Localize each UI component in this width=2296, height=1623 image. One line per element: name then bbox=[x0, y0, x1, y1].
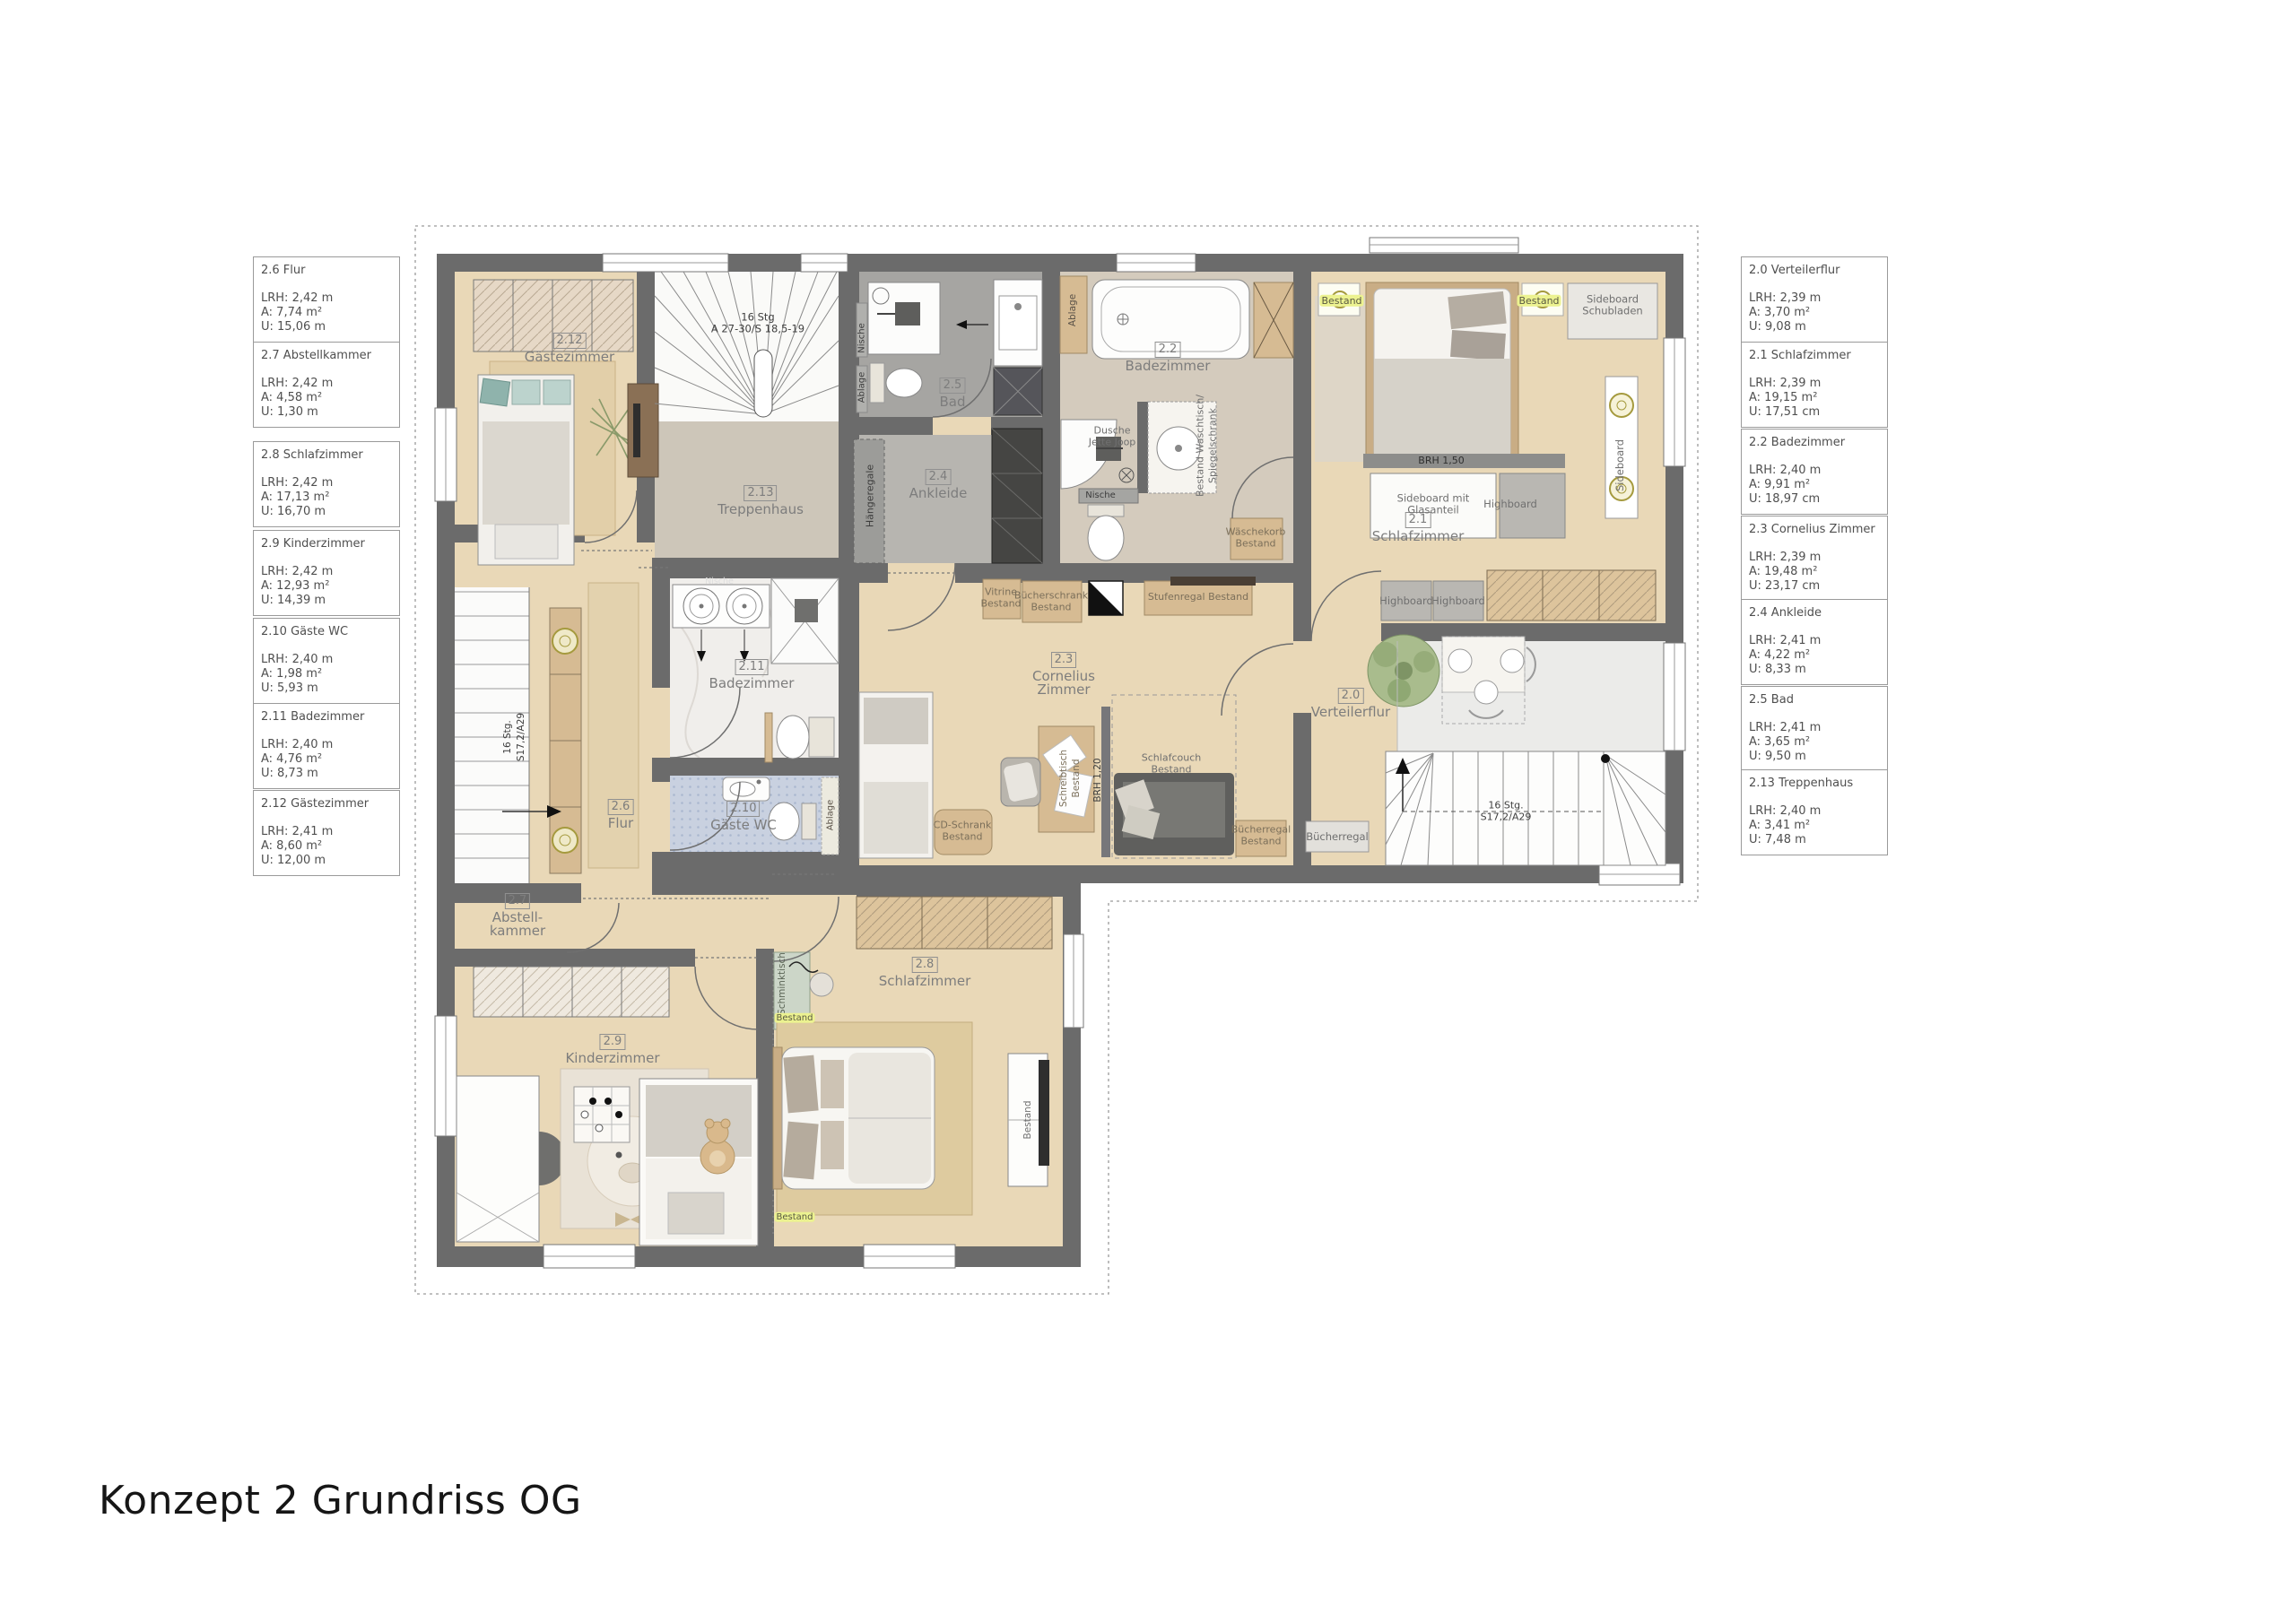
legend-lrh: LRH: 2,39 m bbox=[1749, 377, 1880, 391]
parapet-height-label: BRH 1,50 bbox=[1418, 456, 1464, 467]
window bbox=[1664, 338, 1685, 466]
window bbox=[435, 408, 457, 501]
window bbox=[801, 254, 848, 272]
room-name: Zimmer bbox=[1032, 682, 1095, 698]
room-label-2-10: 2.10Gäste WC bbox=[710, 798, 777, 833]
room-number: 2.9 bbox=[600, 1034, 626, 1050]
room-name: Gästezimmer bbox=[525, 350, 614, 365]
legend-area: A: 4,76 m² bbox=[261, 752, 392, 767]
legend-area: A: 3,70 m² bbox=[1749, 306, 1880, 320]
stair-steps: 16 Stg. bbox=[1481, 801, 1532, 812]
legend-perimeter: U: 18,97 cm bbox=[1749, 492, 1880, 507]
highboard-label: Highboard bbox=[1431, 595, 1485, 607]
legend-lrh: LRH: 2,42 m bbox=[261, 476, 392, 490]
double-bed bbox=[1366, 282, 1518, 466]
window bbox=[1599, 864, 1680, 885]
window bbox=[603, 254, 728, 272]
label-line: Sideboard bbox=[1582, 294, 1642, 306]
window-sill bbox=[1370, 238, 1518, 253]
existing-furniture-label: Bestand bbox=[1517, 296, 1561, 308]
cabinet bbox=[994, 368, 1042, 415]
divider bbox=[765, 713, 772, 762]
legend-area: A: 19,15 m² bbox=[1749, 391, 1880, 405]
legend-lrh: LRH: 2,39 m bbox=[1749, 551, 1880, 565]
legend-box-2-12: 2.12 GästezimmerLRH: 2,41 mA: 8,60 m²U: … bbox=[253, 790, 400, 876]
legend-perimeter: U: 9,50 m bbox=[1749, 750, 1880, 764]
sideboard-label: Sideboard bbox=[1613, 439, 1626, 491]
game-board bbox=[574, 1087, 630, 1142]
room-name: Badezimmer bbox=[709, 676, 795, 691]
legend-area: A: 8,60 m² bbox=[261, 839, 392, 854]
shelf-label: Ablage bbox=[1067, 294, 1078, 326]
shaft-symbol bbox=[1089, 581, 1123, 615]
label-line: Bücherschrank bbox=[1014, 591, 1088, 603]
desk-chair bbox=[1001, 758, 1040, 806]
legend-area: A: 17,13 m² bbox=[261, 490, 392, 505]
vanity-table-label: Schminktisch bbox=[777, 952, 787, 1015]
stair-annotation-top: 16 StgA 27-30/S 18,5-19 bbox=[711, 312, 804, 334]
stair-annotation-main: 16 Stg.S17,2/A29 bbox=[1481, 801, 1532, 823]
existing-furniture-label: Bestand bbox=[775, 1212, 815, 1224]
legend-lrh: LRH: 2,39 m bbox=[1749, 291, 1880, 306]
legend-box-2-13: 2.13 TreppenhausLRH: 2,40 mA: 3,41 m²U: … bbox=[1741, 769, 1888, 855]
cabinet bbox=[1254, 282, 1293, 358]
legend-box-2-7: 2.7 AbstellkammerLRH: 2,42 mA: 4,58 m²U:… bbox=[253, 342, 400, 428]
label-line: Glasanteil bbox=[1397, 504, 1470, 516]
mirror-cabinet-label: Spiegelschrank bbox=[1207, 408, 1219, 483]
niche-label: Nische bbox=[857, 323, 867, 352]
stair-steps: 16 Stg bbox=[711, 312, 804, 324]
sideboard-drawers-label: SideboardSchubladen bbox=[1582, 294, 1642, 317]
legend-box-2-9: 2.9 KinderzimmerLRH: 2,42 mA: 12,93 m²U:… bbox=[253, 530, 400, 616]
legend-box-2-4: 2.4 AnkleideLRH: 2,41 mA: 4,22 m²U: 8,33… bbox=[1741, 599, 1888, 685]
room-name: kammer bbox=[490, 924, 545, 939]
room-label-2-8: 2.8Schlafzimmer bbox=[879, 954, 971, 989]
legend-perimeter: U: 8,73 m bbox=[261, 767, 392, 781]
legend-box-2-3: 2.3 Cornelius ZimmerLRH: 2,39 mA: 19,48 … bbox=[1741, 516, 1888, 602]
window bbox=[1117, 254, 1196, 272]
legend-box-2-0: 2.0 VerteilerflurLRH: 2,39 mA: 3,70 m²U:… bbox=[1741, 256, 1888, 343]
dark-wardrobe bbox=[992, 429, 1042, 563]
legend-area: A: 1,98 m² bbox=[261, 667, 392, 681]
room-label-2-6: 2.6Flur bbox=[608, 796, 634, 831]
sofa-bed bbox=[1114, 773, 1234, 855]
room-label-2-5: 2.5Bad bbox=[939, 375, 965, 410]
room-label-2-11: 2.11Badezimmer bbox=[709, 656, 795, 691]
room-name: Gäste WC bbox=[710, 818, 777, 833]
room-number: 2.12 bbox=[553, 333, 587, 349]
room-name: Bad bbox=[939, 395, 965, 410]
bestand-label: Bestand bbox=[775, 1212, 815, 1222]
window bbox=[544, 1245, 635, 1268]
legend-box-2-11: 2.11 BadezimmerLRH: 2,40 mA: 4,76 m²U: 8… bbox=[253, 703, 400, 789]
legend-title: 2.1 Schlafzimmer bbox=[1749, 349, 1880, 363]
window bbox=[1064, 934, 1083, 1028]
legend-lrh: LRH: 2,41 m bbox=[261, 825, 392, 839]
washstand-label: Bestand Waschtisch/ bbox=[1195, 395, 1206, 497]
legend-area: A: 4,58 m² bbox=[261, 391, 392, 405]
room-name: Flur bbox=[608, 816, 634, 831]
legend-lrh: LRH: 2,42 m bbox=[261, 377, 392, 391]
legend-area: A: 3,41 m² bbox=[1749, 819, 1880, 833]
vanity-sink bbox=[994, 280, 1042, 366]
label-line: Bücherregal bbox=[1231, 825, 1291, 837]
niche-label: Nische bbox=[705, 577, 734, 588]
room-name: Verteilerflur bbox=[1311, 705, 1390, 720]
label-line: Bestand bbox=[1142, 764, 1201, 776]
legend-area: A: 4,22 m² bbox=[1749, 648, 1880, 663]
shelf-label: Ablage bbox=[857, 372, 867, 404]
niche-label: Nische bbox=[1085, 490, 1115, 502]
room-label-2-9: 2.9Kinderzimmer bbox=[565, 1031, 659, 1066]
stair-dimensions-vertical: S17,2/A29 bbox=[516, 713, 526, 761]
desk-label: Schreibtisch bbox=[1058, 750, 1069, 807]
room-number: 2.11 bbox=[735, 659, 769, 675]
room-number: 2.3 bbox=[1051, 652, 1077, 668]
highboard-label: Highboard bbox=[1379, 595, 1433, 607]
room-number: 2.13 bbox=[744, 485, 778, 501]
label-line: Schubladen bbox=[1582, 305, 1642, 317]
legend-title: 2.3 Cornelius Zimmer bbox=[1749, 523, 1880, 537]
bookcase-label: BücherschrankBestand bbox=[1014, 591, 1088, 613]
shower bbox=[868, 282, 940, 354]
legend-title: 2.8 Schlafzimmer bbox=[261, 448, 392, 463]
window bbox=[435, 1016, 457, 1136]
kids-bed bbox=[639, 1079, 758, 1245]
legend-lrh: LRH: 2,41 m bbox=[1749, 634, 1880, 648]
stair-dimensions: A 27-30/S 18,5-19 bbox=[711, 323, 804, 334]
wardrobe bbox=[857, 897, 1052, 949]
bestand-label: Bestand bbox=[1517, 295, 1561, 307]
legend-area: A: 9,91 m² bbox=[1749, 478, 1880, 492]
rug bbox=[1315, 296, 1372, 462]
legend-lrh: LRH: 2,42 m bbox=[261, 291, 392, 306]
legend-title: 2.0 Verteilerflur bbox=[1749, 264, 1880, 278]
window bbox=[1664, 643, 1685, 751]
room-label-2-2: 2.2Badezimmer bbox=[1126, 339, 1211, 374]
highboard-label: Highboard bbox=[1483, 499, 1537, 510]
legend-title: 2.4 Ankleide bbox=[1749, 606, 1880, 621]
legend-lrh: LRH: 2,40 m bbox=[1749, 464, 1880, 478]
legend-title: 2.2 Badezimmer bbox=[1749, 436, 1880, 450]
page-title: Konzept 2 Grundriss OG bbox=[99, 1478, 582, 1523]
room-number: 2.10 bbox=[727, 801, 761, 817]
shelf-unit bbox=[550, 608, 581, 873]
label-line: Bestand bbox=[1226, 538, 1286, 550]
legend-area: A: 12,93 m² bbox=[261, 579, 392, 594]
room-label-2-13: 2.13Treppenhaus bbox=[717, 482, 804, 517]
room-label-2-3: 2.3CorneliusZimmer bbox=[1032, 649, 1095, 698]
bestand-label: Bestand bbox=[1319, 295, 1363, 307]
legend-title: 2.9 Kinderzimmer bbox=[261, 537, 392, 551]
legend-perimeter: U: 15,06 m bbox=[261, 320, 392, 334]
cd-cabinet-label: CD-SchrankBestand bbox=[934, 820, 992, 843]
legend-lrh: LRH: 2,40 m bbox=[261, 738, 392, 752]
legend-box-2-2: 2.2 BadezimmerLRH: 2,40 mA: 9,91 m²U: 18… bbox=[1741, 429, 1888, 515]
room-name: Kinderzimmer bbox=[565, 1051, 659, 1066]
legend-box-2-5: 2.5 BadLRH: 2,41 mA: 3,65 m²U: 9,50 m bbox=[1741, 686, 1888, 772]
toilet bbox=[1088, 505, 1124, 560]
legend-perimeter: U: 8,33 m bbox=[1749, 663, 1880, 677]
label-line: Sideboard mit bbox=[1397, 493, 1470, 505]
label-line: Bestand bbox=[1231, 836, 1291, 847]
hanging-shelves-label: Hängeregale bbox=[865, 464, 876, 527]
legend-perimeter: U: 1,30 m bbox=[261, 405, 392, 420]
room-number: 2.7 bbox=[505, 893, 531, 909]
room-name: Badezimmer bbox=[1126, 359, 1211, 374]
legend-area: A: 7,74 m² bbox=[261, 306, 392, 320]
legend-box-2-8: 2.8 SchlafzimmerLRH: 2,42 mA: 17,13 m²U:… bbox=[253, 441, 400, 527]
legend-perimeter: U: 17,51 cm bbox=[1749, 405, 1880, 420]
bookshelf-label: BücherregalBestand bbox=[1231, 825, 1291, 847]
stair-dimensions: S17,2/A29 bbox=[1481, 811, 1532, 823]
legend-title: 2.6 Flur bbox=[261, 264, 392, 278]
legend-lrh: LRH: 2,40 m bbox=[1749, 804, 1880, 819]
room-label-2-0: 2.0Verteilerflur bbox=[1311, 685, 1390, 720]
legend-perimeter: U: 9,08 m bbox=[1749, 320, 1880, 334]
legend-perimeter: U: 14,39 m bbox=[261, 594, 392, 608]
room-number: 2.2 bbox=[1155, 342, 1181, 358]
legend-title: 2.7 Abstellkammer bbox=[261, 349, 392, 363]
existing-furniture-label: Bestand bbox=[1319, 296, 1363, 308]
room-name: Schlafzimmer bbox=[879, 974, 971, 989]
legend-box-2-10: 2.10 Gäste WCLRH: 2,40 mA: 1,98 m²U: 5,9… bbox=[253, 618, 400, 704]
shower-label-line: Dusche bbox=[1089, 426, 1136, 438]
legend-title: 2.5 Bad bbox=[1749, 693, 1880, 707]
legend-box-2-1: 2.1 SchlafzimmerLRH: 2,39 mA: 19,15 m²U:… bbox=[1741, 342, 1888, 428]
legend-lrh: LRH: 2,41 m bbox=[1749, 721, 1880, 735]
single-bed bbox=[859, 692, 933, 858]
legend-perimeter: U: 5,93 m bbox=[261, 681, 392, 696]
legend-perimeter: U: 16,70 m bbox=[261, 505, 392, 519]
legend-perimeter: U: 23,17 cm bbox=[1749, 579, 1880, 594]
bestand-label: Bestand bbox=[775, 1013, 815, 1023]
tv-cabinet-label: Bestand bbox=[1022, 1100, 1033, 1139]
legend-title: 2.11 Badezimmer bbox=[261, 710, 392, 725]
legend-perimeter: U: 7,48 m bbox=[1749, 833, 1880, 847]
window bbox=[864, 1245, 955, 1268]
shower-label: DuscheJette Joop bbox=[1089, 426, 1136, 448]
existing-furniture-label: Bestand bbox=[775, 1013, 815, 1025]
desk-label: Bestand bbox=[1071, 759, 1082, 797]
room-number: 2.4 bbox=[926, 469, 952, 485]
bed bbox=[478, 375, 574, 565]
laundry-basket-label: WäschekorbBestand bbox=[1226, 527, 1286, 550]
bookshelf-label: Bücherregal bbox=[1306, 831, 1368, 843]
room-label-2-7: 2.7Abstell-kammer bbox=[490, 890, 545, 939]
legend-area: A: 3,65 m² bbox=[1749, 735, 1880, 750]
shower bbox=[771, 578, 839, 664]
label-line: Bestand bbox=[1014, 602, 1088, 613]
room-number: 2.5 bbox=[940, 378, 966, 394]
legend-box-2-6: 2.6 FlurLRH: 2,42 mA: 7,74 m²U: 15,06 m bbox=[253, 256, 400, 343]
label-line: Bestand bbox=[934, 831, 992, 843]
legend-perimeter: U: 12,00 m bbox=[261, 854, 392, 868]
parapet-height-label: BRH 1,20 bbox=[1092, 758, 1103, 802]
legend-area: A: 19,48 m² bbox=[1749, 565, 1880, 579]
step-shelf-label: Stufenregal Bestand bbox=[1148, 592, 1248, 603]
room-name: Schlafzimmer bbox=[1372, 529, 1465, 544]
dresser bbox=[628, 384, 658, 477]
shelf-label: Ablage bbox=[826, 800, 836, 831]
room-label-2-4: 2.4Ankleide bbox=[909, 466, 968, 501]
floor-plan-sheet: 2.12Gästezimmer 2.13Treppenhaus 2.5Bad 2… bbox=[0, 0, 2296, 1623]
label-line: CD-Schrank bbox=[934, 820, 992, 832]
legend-lrh: LRH: 2,40 m bbox=[261, 653, 392, 667]
room-number: 2.6 bbox=[608, 799, 634, 815]
room-label-2-12: 2.12Gästezimmer bbox=[525, 330, 614, 365]
wardrobe bbox=[1487, 570, 1656, 621]
shower-label-line: Jette Joop bbox=[1089, 437, 1136, 448]
double-bed bbox=[773, 1047, 935, 1189]
bookshelf bbox=[474, 967, 669, 1017]
sofa-bed-label: SchlafcouchBestand bbox=[1142, 753, 1201, 776]
room-name: Ankleide bbox=[909, 486, 968, 501]
label-line: Wäschekorb bbox=[1226, 527, 1286, 539]
legend-title: 2.12 Gästezimmer bbox=[261, 797, 392, 811]
room-number: 2.0 bbox=[1338, 688, 1364, 704]
label-line: Schlafcouch bbox=[1142, 753, 1201, 765]
room-name: Treppenhaus bbox=[717, 502, 804, 517]
legend-title: 2.10 Gäste WC bbox=[261, 625, 392, 639]
legend-title: 2.13 Treppenhaus bbox=[1749, 777, 1880, 791]
legend-lrh: LRH: 2,42 m bbox=[261, 565, 392, 579]
sideboard-glass-label: Sideboard mitGlasanteil bbox=[1397, 493, 1470, 516]
room-number: 2.8 bbox=[912, 957, 938, 973]
stair-steps-vertical: 16 Stg. bbox=[502, 720, 513, 753]
